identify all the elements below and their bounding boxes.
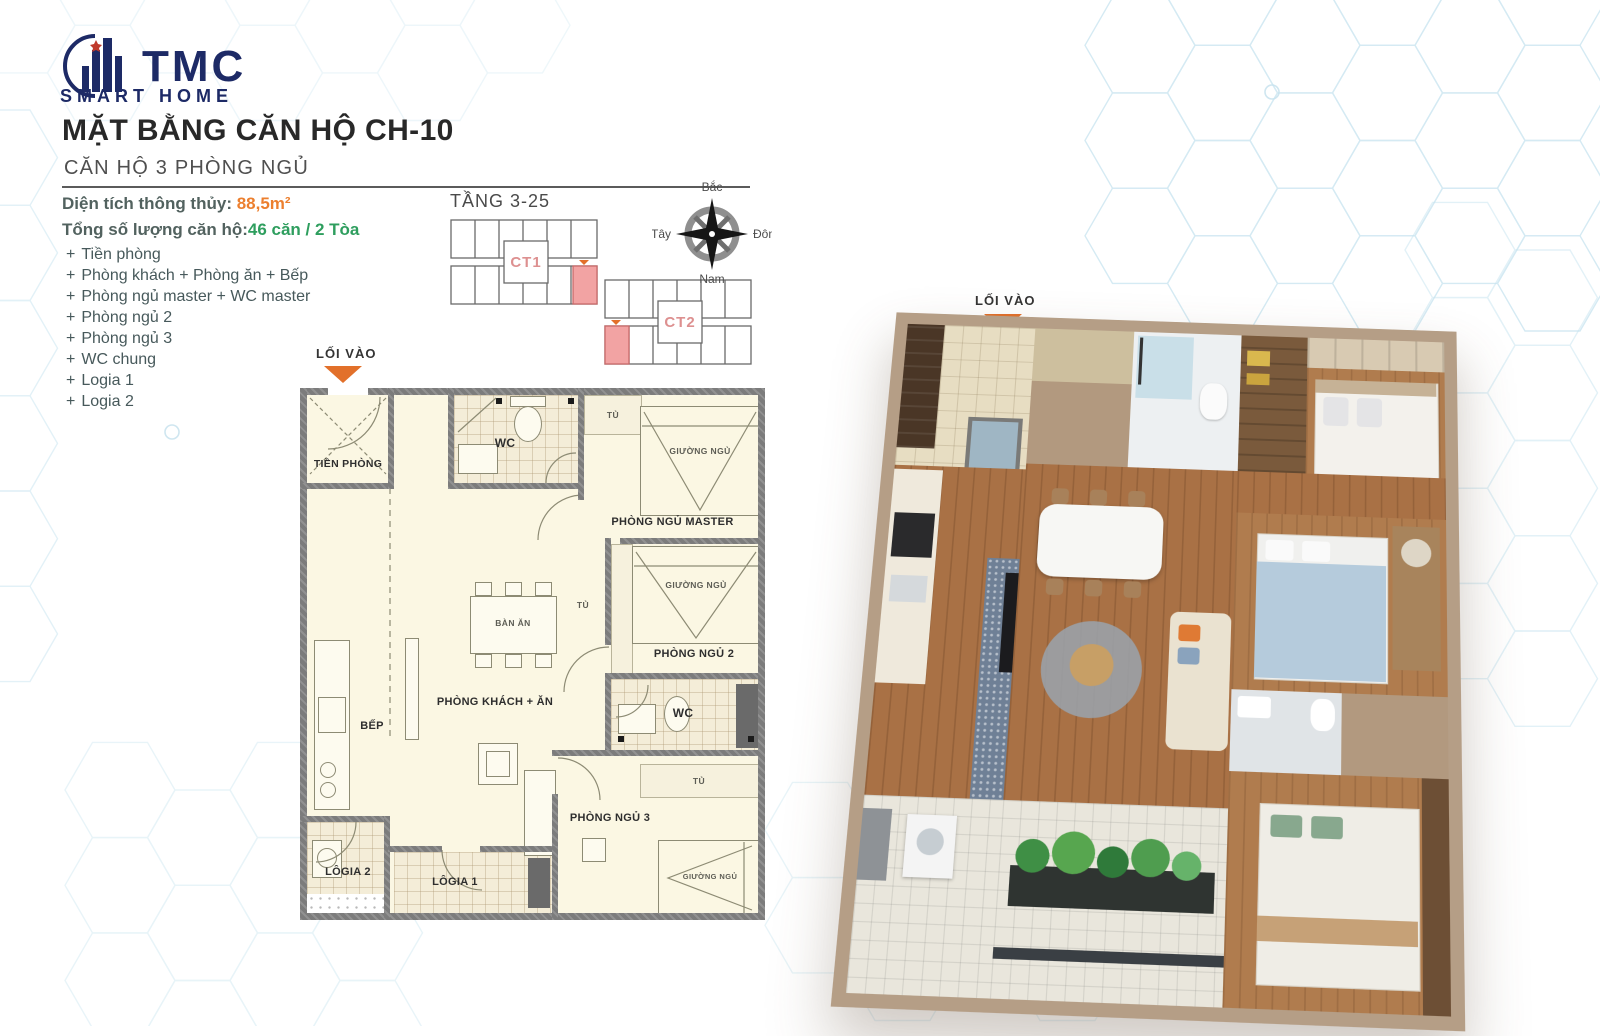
compass-south-label: Nam bbox=[699, 272, 724, 286]
label-dining-table: BÀN ĂN bbox=[472, 618, 554, 628]
render-pillow bbox=[1357, 398, 1382, 428]
room-list-item: Logia 1 bbox=[66, 370, 310, 391]
compass-west-label: Tây bbox=[652, 227, 671, 241]
render-shelf-box bbox=[1247, 351, 1270, 367]
wall bbox=[300, 388, 307, 920]
page: TMC SMART HOME MẶT BẰNG CĂN HỘ CH-10 CĂN… bbox=[0, 0, 1600, 1026]
logo-name: TMC bbox=[142, 42, 246, 92]
entrance-label-2d: LỐI VÀO bbox=[316, 346, 376, 361]
entrance-label-3d: LỐI VÀO bbox=[975, 293, 1035, 308]
wall bbox=[578, 388, 584, 500]
wall bbox=[480, 846, 558, 852]
room-list: Tiền phòngPhòng khách + Phòng ăn + BếpPh… bbox=[66, 244, 310, 412]
room-list-item: Phòng khách + Phòng ăn + Bếp bbox=[66, 265, 310, 286]
render-pillow-green bbox=[1311, 816, 1343, 839]
room-list-item: Tiền phòng bbox=[66, 244, 310, 265]
wall bbox=[300, 816, 388, 822]
render-chair bbox=[1128, 491, 1146, 507]
room-label-wc-master: WC bbox=[480, 436, 530, 450]
floor-range-label: TẦNG 3-25 bbox=[450, 191, 550, 212]
wall bbox=[758, 388, 765, 920]
render-toilet bbox=[1199, 383, 1227, 420]
label-bed-bedroom3: GIƯỜNG NGỦ bbox=[662, 872, 758, 881]
compass-rose: Bắc Đông Nam Tây bbox=[652, 178, 772, 288]
render-side-door bbox=[856, 808, 892, 881]
render-cushion-orange bbox=[1178, 624, 1200, 641]
render-kitchen-sink bbox=[889, 575, 928, 603]
total-units-info: Tổng số lượng căn hộ:46 căn / 2 Tòa bbox=[62, 220, 359, 240]
wall bbox=[300, 913, 765, 920]
logo-tagline: SMART HOME bbox=[60, 86, 233, 107]
render-wardrobe3 bbox=[1422, 778, 1451, 1016]
room-label-logia1: LÔGIA 1 bbox=[400, 876, 510, 888]
room-list-item: Phòng ngủ 3 bbox=[66, 328, 310, 349]
render-chair bbox=[1090, 489, 1108, 505]
wall bbox=[552, 846, 558, 920]
tower-ct2-keyplan: CT2 bbox=[601, 274, 759, 372]
wall bbox=[388, 846, 442, 852]
label-wardrobe-bedroom3: TỦ bbox=[640, 776, 758, 786]
apartment-3d-shell bbox=[831, 312, 1466, 1031]
render-sink bbox=[1237, 696, 1271, 719]
brand-logo: TMC SMART HOME bbox=[58, 24, 418, 120]
wall bbox=[448, 388, 454, 489]
wall bbox=[552, 750, 758, 756]
room-label-living: PHÒNG KHÁCH + ĂN bbox=[415, 696, 575, 708]
render-shower bbox=[1135, 336, 1194, 400]
room-list-item: Phòng ngủ master + WC master bbox=[66, 286, 310, 307]
render-bed2-duvet bbox=[1254, 561, 1386, 682]
render-cushion-blue bbox=[1177, 647, 1200, 665]
room-label-bedroom2: PHÒNG NGỦ 2 bbox=[630, 648, 758, 660]
render-wall-mass bbox=[1032, 328, 1134, 384]
room-label-bedroom3: PHÒNG NGỦ 3 bbox=[558, 812, 662, 824]
wall bbox=[620, 538, 758, 544]
floor-plan-3d bbox=[878, 322, 1458, 1036]
area-value: 88,5m² bbox=[237, 194, 291, 213]
room-label-wc-shared: WC bbox=[658, 706, 708, 720]
render-chair bbox=[1084, 580, 1102, 597]
entrance-arrow-2d bbox=[324, 366, 362, 383]
wall bbox=[605, 538, 611, 645]
wall bbox=[605, 673, 758, 679]
compass-east-label: Đông bbox=[753, 227, 772, 241]
label-bed-master: GIƯỜNG NGỦ bbox=[640, 446, 760, 456]
floor-plan-2d: TIỀN PHÒNG WC PHÒNG NGỦ MASTER PHÒNG NGỦ… bbox=[300, 388, 765, 920]
render-shelf-box bbox=[1246, 373, 1269, 385]
render-chair bbox=[1123, 581, 1141, 598]
room-list-item: Phòng ngủ 2 bbox=[66, 307, 310, 328]
render-pillow bbox=[1302, 541, 1330, 562]
wall bbox=[368, 388, 765, 395]
render-pillow bbox=[1323, 397, 1348, 427]
wall bbox=[300, 483, 388, 489]
render-chair bbox=[1051, 488, 1069, 504]
compass-north-label: Bắc bbox=[702, 179, 723, 194]
area-label: Diện tích thông thủy: bbox=[62, 194, 232, 213]
total-units-label: Tổng số lượng căn hộ: bbox=[62, 220, 248, 239]
render-pillow-green bbox=[1270, 814, 1302, 837]
page-subtitle: CĂN HỘ 3 PHÒNG NGỦ bbox=[64, 157, 309, 180]
label-wardrobe-bedroom2: TỦ bbox=[568, 600, 598, 610]
render-dining-table bbox=[1036, 503, 1164, 580]
tower-ct1-label: CT1 bbox=[510, 254, 541, 271]
wall bbox=[388, 388, 394, 489]
render-mirror bbox=[1401, 538, 1431, 567]
room-label-tien-phong: TIỀN PHÒNG bbox=[308, 458, 388, 470]
render-cooktop bbox=[891, 512, 936, 558]
header-divider bbox=[62, 186, 750, 188]
render-chair bbox=[1045, 578, 1063, 595]
area-info: Diện tích thông thủy: 88,5m² bbox=[62, 194, 291, 214]
wall bbox=[448, 483, 584, 489]
render-pillow bbox=[1265, 540, 1293, 561]
label-wardrobe-master: TỦ bbox=[598, 410, 628, 420]
total-units-value: 46 căn / 2 Tòa bbox=[248, 220, 360, 239]
room-label-logia2: LÔGIA 2 bbox=[310, 866, 386, 878]
room-list-item: WC chung bbox=[66, 349, 310, 370]
unit-highlight-ct1 bbox=[573, 266, 597, 304]
label-bed-bedroom2: GIƯỜNG NGỦ bbox=[632, 580, 760, 590]
tower-ct2-label: CT2 bbox=[664, 314, 695, 331]
room-label-kitchen: BẾP bbox=[352, 720, 392, 732]
render-master-closet bbox=[1307, 338, 1444, 373]
render-toilet bbox=[1310, 699, 1335, 732]
wall bbox=[605, 673, 611, 756]
tower-ct1-keyplan: CT1 bbox=[447, 214, 605, 312]
room-label-master: PHÒNG NGỦ MASTER bbox=[585, 516, 760, 528]
page-title: MẶT BẰNG CĂN HỘ CH-10 bbox=[62, 114, 454, 148]
unit-highlight-ct2 bbox=[605, 326, 629, 364]
room-list-item: Logia 2 bbox=[66, 391, 310, 412]
